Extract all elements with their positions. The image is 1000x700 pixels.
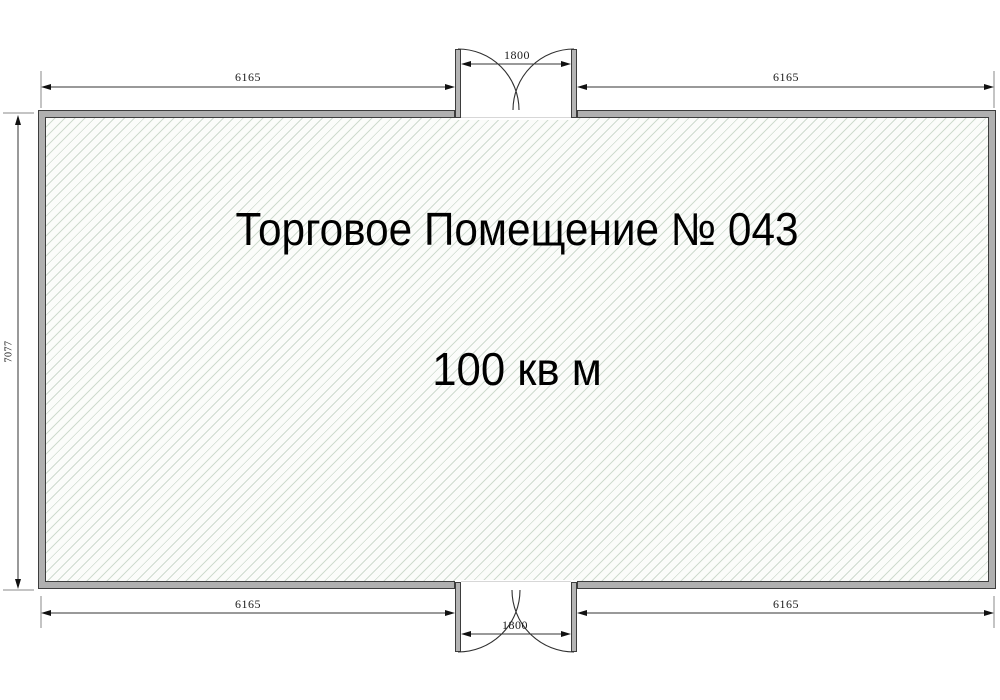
dimension-label-left-height: 7077	[3, 326, 16, 378]
dimension-label-bottom-right: 6165	[736, 598, 836, 611]
dimension-label-top-left: 6165	[198, 71, 298, 84]
dimension-label-bottom-left: 6165	[198, 598, 298, 611]
dimension-label-top-right: 6165	[736, 71, 836, 84]
room-area: 100 кв м	[232, 342, 802, 396]
room-title: Торговое Помещение № 043	[103, 202, 931, 256]
floor-plan: 6165 6165 1800 6165 6165 1800 7077 Торго…	[0, 0, 1000, 700]
dimension-label-bottom-door: 1800	[485, 619, 545, 632]
dimension-label-top-door: 1800	[487, 49, 547, 62]
